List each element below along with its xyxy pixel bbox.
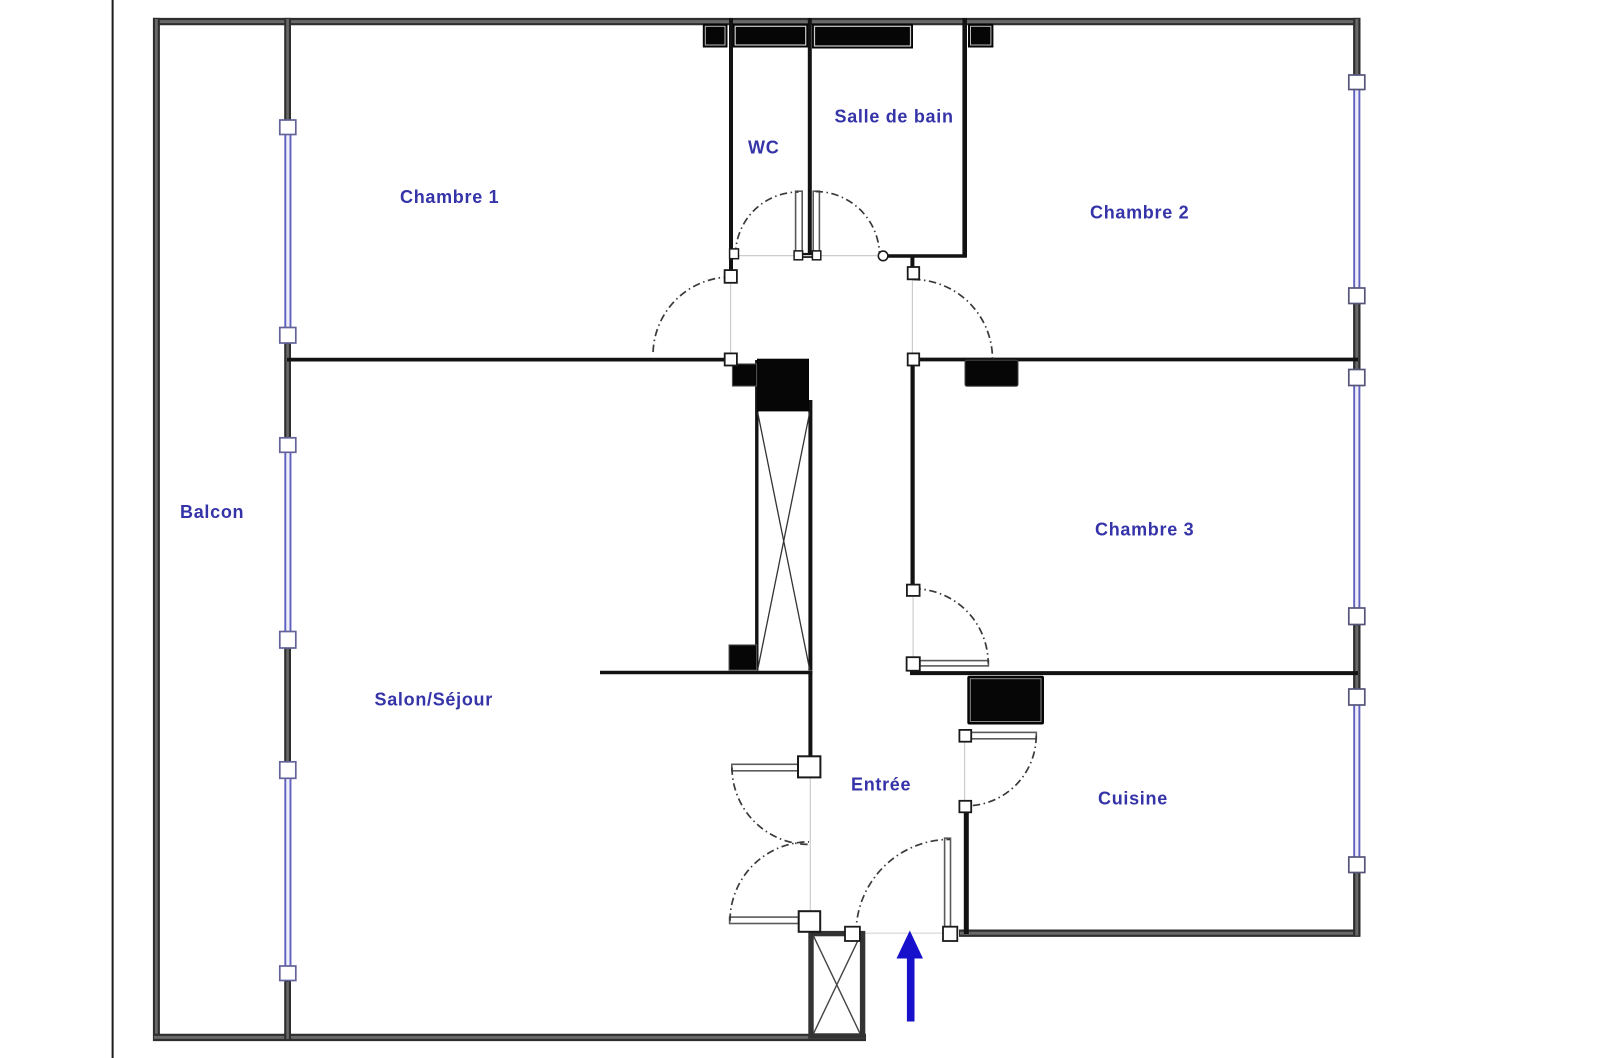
- svg-text:Chambre 1: Chambre 1: [400, 187, 499, 207]
- svg-text:Balcon: Balcon: [180, 502, 244, 522]
- svg-text:Salon/Séjour: Salon/Séjour: [375, 690, 493, 710]
- svg-text:Salle de bain: Salle de bain: [835, 107, 954, 127]
- svg-text:WC: WC: [748, 138, 779, 158]
- svg-text:Chambre 2: Chambre 2: [1090, 203, 1189, 223]
- svg-text:Chambre 3: Chambre 3: [1095, 520, 1194, 540]
- svg-text:Cuisine: Cuisine: [1098, 789, 1168, 809]
- svg-text:Entrée: Entrée: [851, 775, 911, 795]
